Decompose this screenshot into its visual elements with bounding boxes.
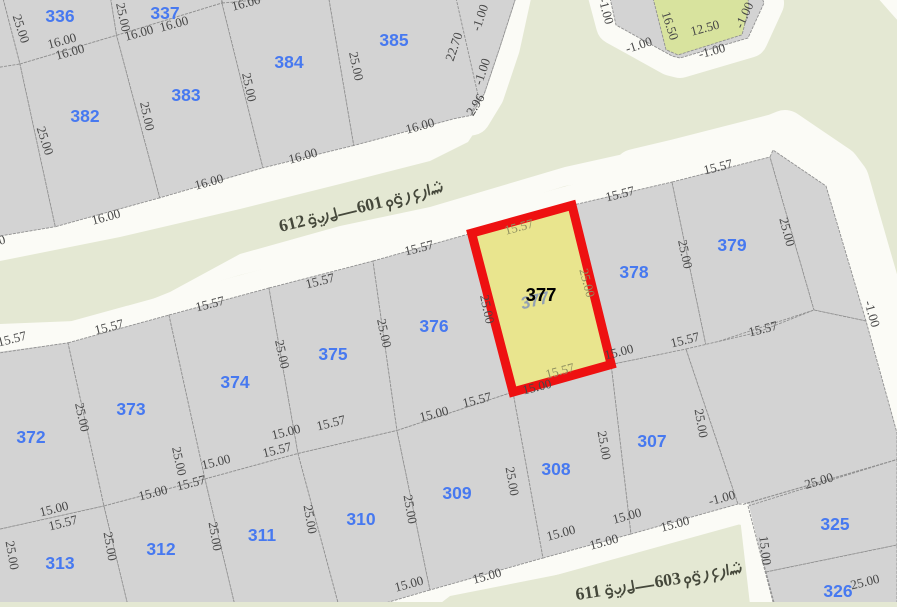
svg-text:375: 375 <box>318 344 347 364</box>
svg-text:307: 307 <box>637 431 666 451</box>
svg-text:336: 336 <box>45 6 74 26</box>
svg-text:384: 384 <box>274 52 303 72</box>
svg-text:385: 385 <box>379 30 408 50</box>
svg-text:373: 373 <box>116 399 145 419</box>
svg-text:611: 611 <box>574 580 602 602</box>
svg-text:311: 311 <box>248 525 276 545</box>
svg-text:603: 603 <box>653 568 682 592</box>
svg-text:312: 312 <box>146 539 175 559</box>
svg-text:308: 308 <box>541 459 570 479</box>
svg-text:313: 313 <box>45 553 74 573</box>
svg-text:374: 374 <box>220 372 249 392</box>
svg-text:378: 378 <box>619 262 648 282</box>
svg-text:310: 310 <box>346 509 375 529</box>
svg-text:379: 379 <box>717 235 746 255</box>
svg-text:382: 382 <box>70 106 99 126</box>
svg-text:372: 372 <box>16 427 45 447</box>
svg-text:376: 376 <box>419 316 448 336</box>
svg-text:325: 325 <box>820 514 849 534</box>
svg-text:383: 383 <box>171 85 200 105</box>
svg-text:326: 326 <box>823 581 852 601</box>
svg-text:309: 309 <box>442 483 471 503</box>
svg-text:377: 377 <box>526 284 557 305</box>
